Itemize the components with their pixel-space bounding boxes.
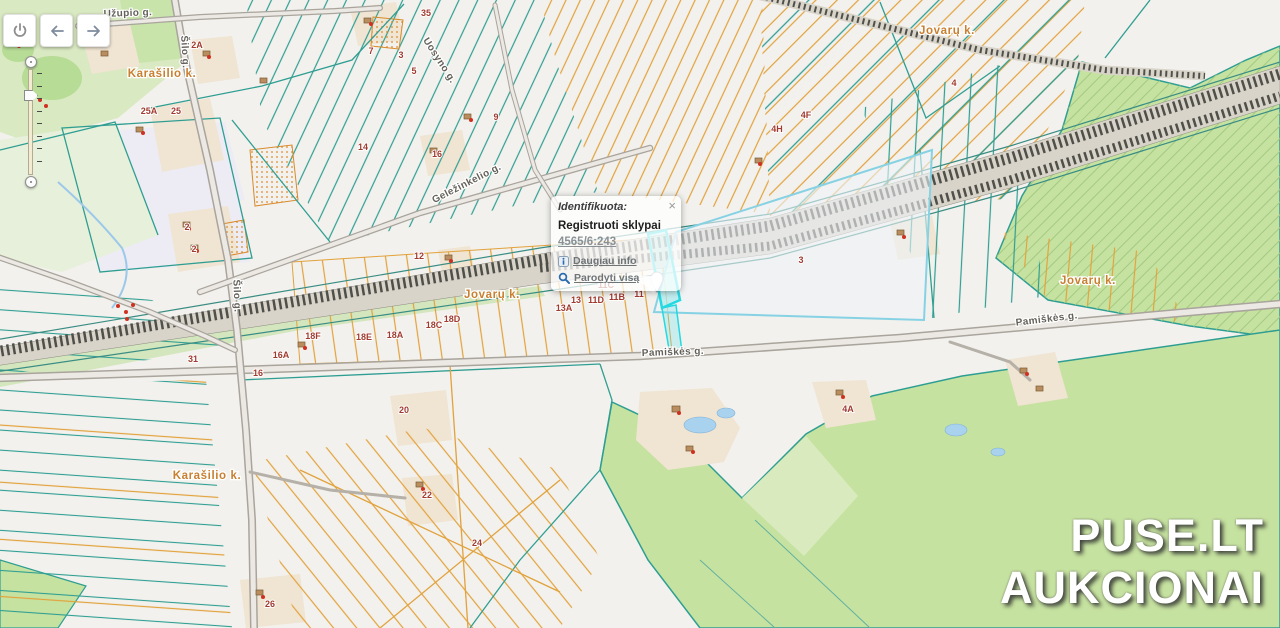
- power-button[interactable]: [3, 14, 36, 47]
- show-all-link[interactable]: Parodyti visą: [574, 272, 639, 284]
- parcel-number-label: 4: [951, 78, 956, 88]
- zoom-handle[interactable]: [24, 90, 38, 101]
- parcel-number-label: 24: [472, 538, 482, 548]
- parcel-number-label: 2: [191, 244, 196, 254]
- watermark: PUSE.LT AUKCIONAI: [1000, 510, 1264, 614]
- map-toolbar: [3, 14, 110, 47]
- village-label: Karašilio k.: [128, 68, 197, 80]
- identify-popup: Identifikuota: × Registruoti sklypai 456…: [551, 196, 681, 291]
- arrow-left-icon: [48, 22, 66, 40]
- popup-title: Identifikuota:: [558, 201, 627, 213]
- power-icon: [11, 22, 29, 40]
- parcel-number-label: 18A: [387, 330, 404, 340]
- parcel-number-label: 13A: [556, 303, 573, 313]
- zoom-track[interactable]: [28, 69, 33, 175]
- parcel-number-label: 4H: [771, 124, 783, 134]
- zoom-tick: [37, 86, 42, 87]
- zoom-in-button[interactable]: [25, 56, 37, 68]
- layer-name: Registruoti sklypai: [558, 220, 674, 232]
- zoom-tick: [37, 148, 42, 149]
- zoom-tick: [37, 111, 42, 112]
- village-label: Karašilio k.: [173, 470, 242, 482]
- zoom-out-button[interactable]: [25, 176, 37, 188]
- info-icon: [558, 256, 569, 267]
- parcel-number-label: 26: [265, 599, 275, 609]
- zoom-tick: [37, 161, 42, 162]
- arrow-right-icon: [85, 22, 103, 40]
- zoom-tick: [37, 123, 42, 124]
- map-viewport[interactable]: Karašilio k.Jovarų k.Jovarų k.Jovarų k.K…: [0, 0, 1280, 628]
- parcel-number-label: 16: [253, 368, 263, 378]
- more-info-link[interactable]: Daugiau info: [573, 255, 637, 267]
- parcel-number-label: 4F: [801, 110, 812, 120]
- parcel-number-label: 14: [358, 142, 368, 152]
- parcel-number-label: 20: [399, 405, 409, 415]
- village-label: Jovarų k.: [464, 289, 520, 301]
- parcel-number-label: 2A: [191, 40, 203, 50]
- zoom-tick: [37, 98, 42, 99]
- parcel-number-label: 12: [414, 251, 424, 261]
- village-label: Jovarų k.: [1060, 275, 1116, 287]
- zoom-slider[interactable]: [23, 56, 43, 196]
- parcel-number-label: 18F: [305, 331, 321, 341]
- parcel-number-label: 9: [493, 112, 498, 122]
- parcel-number-label: 2: [184, 222, 189, 232]
- street-label: Šilo g.: [230, 279, 244, 312]
- parcel-number-label: 3: [798, 255, 803, 265]
- parcel-number-label: 25A: [141, 106, 158, 116]
- parcel-number-label: 11D: [588, 295, 605, 305]
- parcel-number-label: 25: [171, 106, 181, 116]
- parcel-number-label: 31: [188, 354, 198, 364]
- parcel-number-label: 18E: [356, 332, 372, 342]
- back-button[interactable]: [40, 14, 73, 47]
- watermark-line2: AUKCIONAI: [1000, 562, 1264, 614]
- magnifier-icon: [558, 272, 570, 284]
- parcel-number-label: 16: [432, 149, 442, 159]
- parcel-number-label: 22: [422, 490, 432, 500]
- parcel-number-label: 7: [368, 46, 373, 56]
- close-icon[interactable]: ×: [668, 201, 676, 211]
- zoom-tick: [37, 136, 42, 137]
- parcel-number-label: 3: [398, 50, 403, 60]
- watermark-line1: PUSE.LT: [1000, 510, 1264, 562]
- street-label: Pamiškės g.: [642, 346, 705, 359]
- forward-button[interactable]: [77, 14, 110, 47]
- street-label: Užupio g.: [103, 7, 152, 20]
- parcel-number-label: 35: [421, 8, 431, 18]
- zoom-tick: [37, 73, 42, 74]
- parcel-number-label: 4A: [842, 404, 854, 414]
- parcel-number-label: 11B: [609, 292, 626, 302]
- parcel-number-label: 5: [411, 66, 416, 76]
- parcel-number-label: 18C: [426, 320, 443, 330]
- parcel-number-label: 13: [571, 295, 581, 305]
- parcel-id-link[interactable]: 4565/6:243: [558, 236, 616, 248]
- village-label: Jovarų k.: [919, 25, 975, 37]
- parcel-number-label: 16A: [273, 350, 290, 360]
- parcel-number-label: 18D: [444, 314, 461, 324]
